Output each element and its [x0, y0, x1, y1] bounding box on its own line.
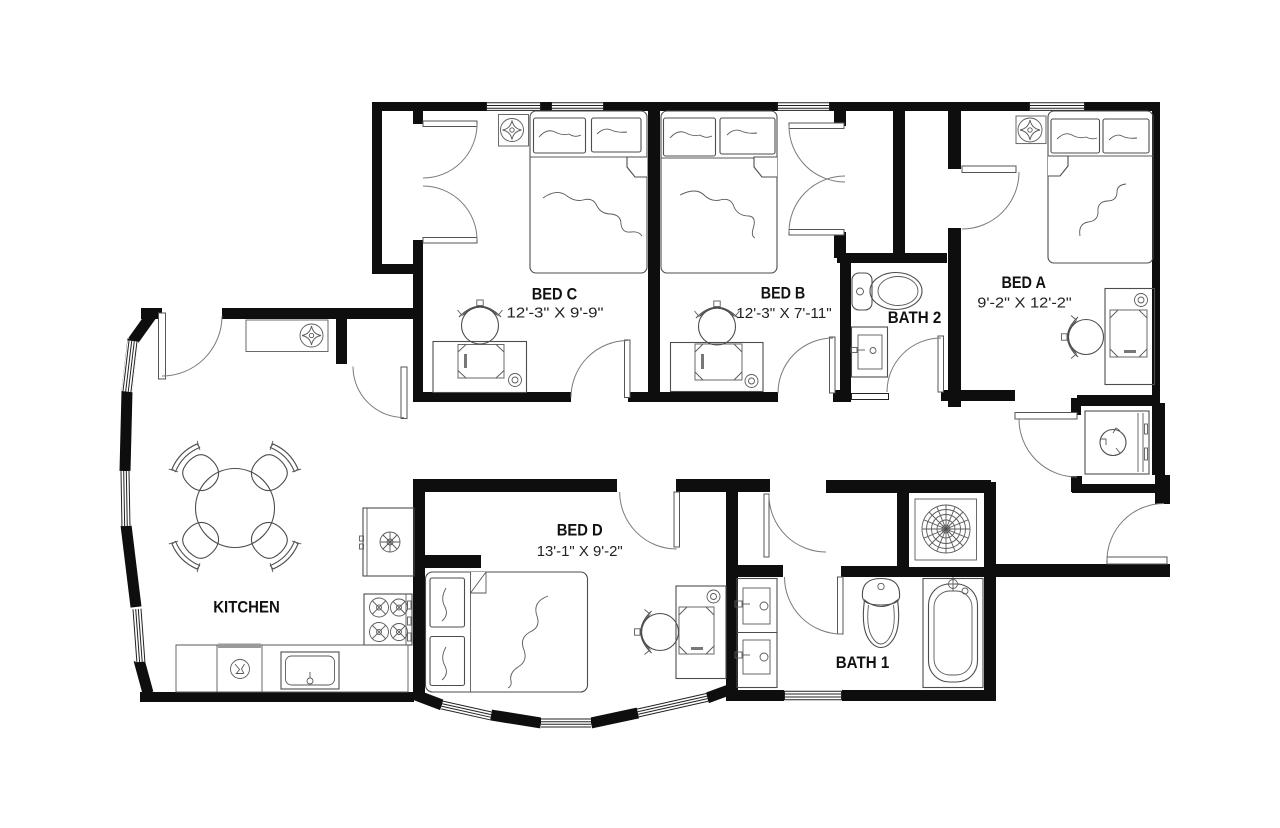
- svg-text:KITCHEN: KITCHEN: [213, 597, 280, 616]
- svg-text:BED A: BED A: [1001, 273, 1046, 292]
- svg-text:BATH 2: BATH 2: [888, 308, 942, 327]
- svg-text:BED D: BED D: [557, 521, 603, 540]
- svg-text:12'-3" X 9'-9": 12'-3" X 9'-9": [507, 305, 604, 322]
- svg-text:9'-2" X 12'-2": 9'-2" X 12'-2": [977, 295, 1072, 312]
- svg-text:12'-3" X 7'-11": 12'-3" X 7'-11": [736, 305, 832, 322]
- svg-text:BATH 1: BATH 1: [836, 653, 890, 672]
- svg-text:BED B: BED B: [761, 284, 806, 303]
- svg-text:13'-1" X 9'-2": 13'-1" X 9'-2": [537, 543, 623, 560]
- svg-text:BED C: BED C: [532, 285, 578, 304]
